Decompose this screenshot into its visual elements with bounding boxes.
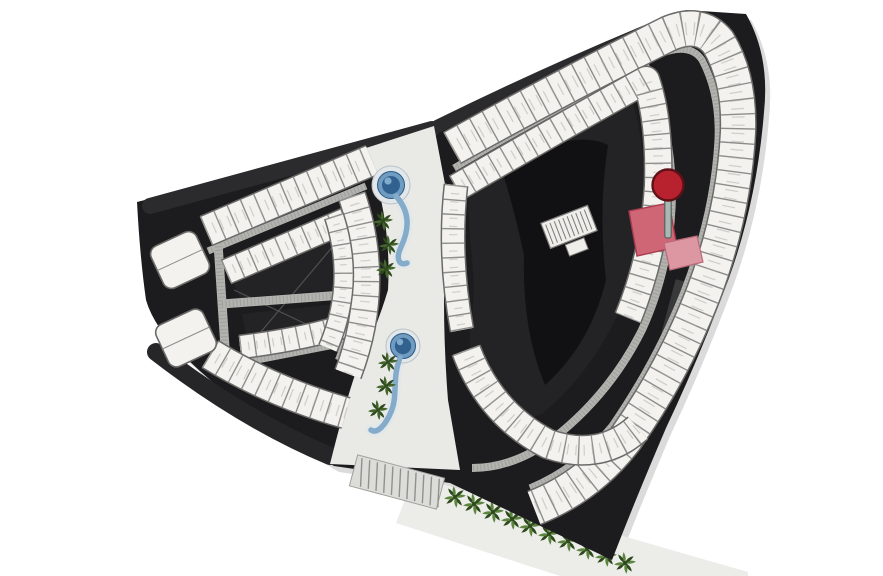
site-plan-viewport xyxy=(0,0,883,576)
site-plan-canvas xyxy=(0,0,883,576)
pool-water xyxy=(382,176,400,194)
pin-stick xyxy=(665,196,671,238)
pool-water xyxy=(395,338,411,354)
pin-head-icon[interactable] xyxy=(653,170,684,201)
pool-highlight xyxy=(397,339,403,345)
pool-highlight xyxy=(384,177,391,184)
